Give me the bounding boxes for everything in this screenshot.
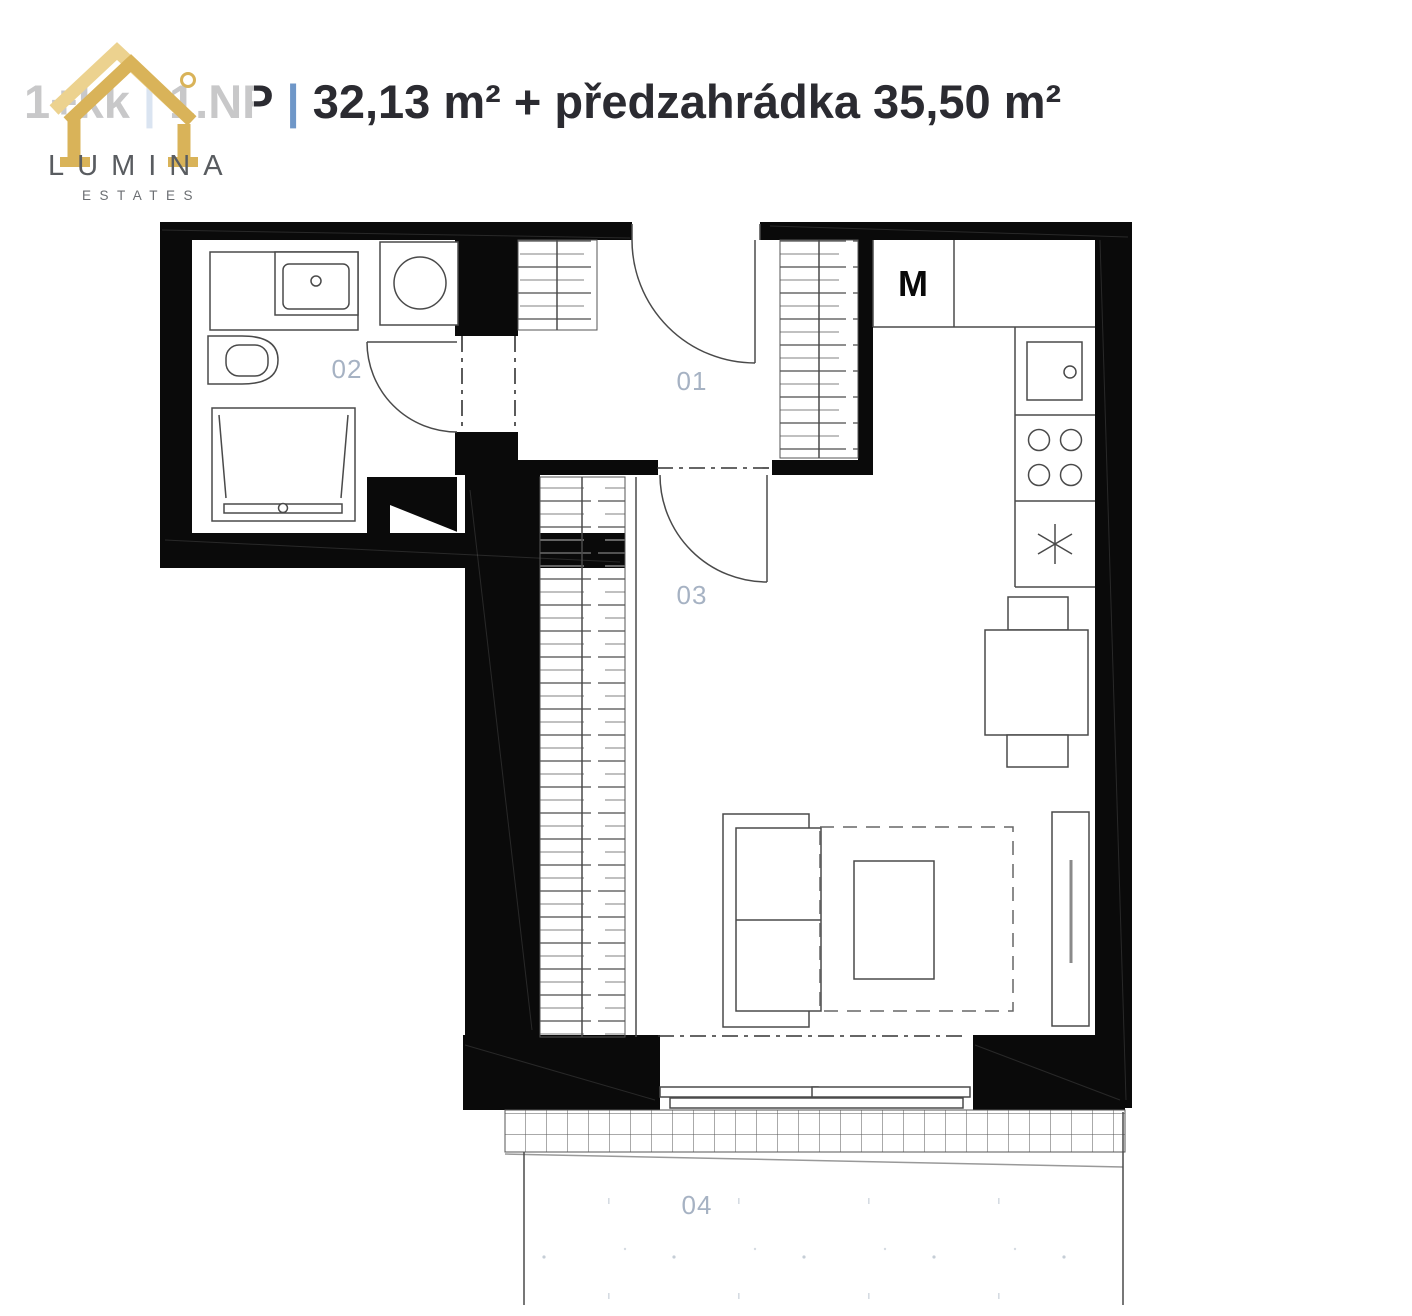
bathroom-door	[367, 336, 515, 432]
room-label-03: 03	[677, 580, 708, 610]
real-estate-floor-plan-page: 1+kk|1.NP|32,13 m² + předzahrádka 35,50 …	[0, 0, 1412, 1316]
shower-drain-icon	[279, 504, 288, 513]
garden-paving-grid	[505, 1110, 1125, 1152]
sink-faucet-icon	[311, 276, 321, 286]
appliance-label-m: M	[898, 263, 928, 304]
dining-set	[985, 597, 1088, 767]
glass-door-panel-right	[812, 1087, 970, 1097]
wall-left-outer	[160, 222, 192, 568]
bathroom-vanity	[210, 252, 358, 330]
tv-cabinet	[1052, 812, 1089, 1026]
bathroom-door-swing-arc	[367, 342, 457, 432]
shower	[212, 408, 355, 521]
wall-hall-bottom-right	[772, 460, 873, 475]
coffee-table	[854, 861, 934, 979]
garden-window-door	[658, 1036, 970, 1108]
door-sill	[670, 1098, 963, 1108]
kitchen-faucet-icon	[1064, 366, 1076, 378]
stove-cooktop	[1029, 430, 1082, 486]
wall-living-left	[465, 475, 540, 1040]
wall-hall-bottom-left	[455, 460, 658, 475]
garden-grass-specks	[540, 1165, 1110, 1305]
living-door-swing-arc	[660, 475, 767, 582]
living-room-door	[657, 468, 772, 582]
kitchen-sink	[1027, 342, 1082, 400]
dining-table	[985, 630, 1088, 735]
entrance-door-swing-arc	[632, 240, 755, 363]
washing-machine	[380, 242, 458, 325]
dining-chair-top	[1008, 597, 1068, 630]
glass-door-panel-left	[660, 1087, 818, 1097]
washing-machine-drum	[394, 257, 446, 309]
wall-texture-lines	[162, 226, 1128, 1100]
front-garden	[505, 1110, 1125, 1305]
wall-bottom-right	[973, 1035, 1125, 1110]
wall-bathroom-right-upper	[455, 222, 518, 336]
dining-chair-bottom	[1007, 735, 1068, 767]
room-label-04: 04	[682, 1190, 713, 1220]
toilet	[208, 336, 278, 384]
room-label-02: 02	[332, 354, 363, 384]
floor-plan-drawing: 02 01 03 04 M	[0, 0, 1412, 1316]
sofa	[723, 814, 821, 1027]
room-label-01: 01	[677, 366, 708, 396]
toilet-bowl	[226, 345, 268, 376]
wall-right-outer	[1095, 222, 1132, 1108]
fridge-snowflake-icon	[1038, 524, 1072, 564]
wall-closet-right	[858, 240, 873, 460]
entrance-door	[632, 224, 760, 363]
